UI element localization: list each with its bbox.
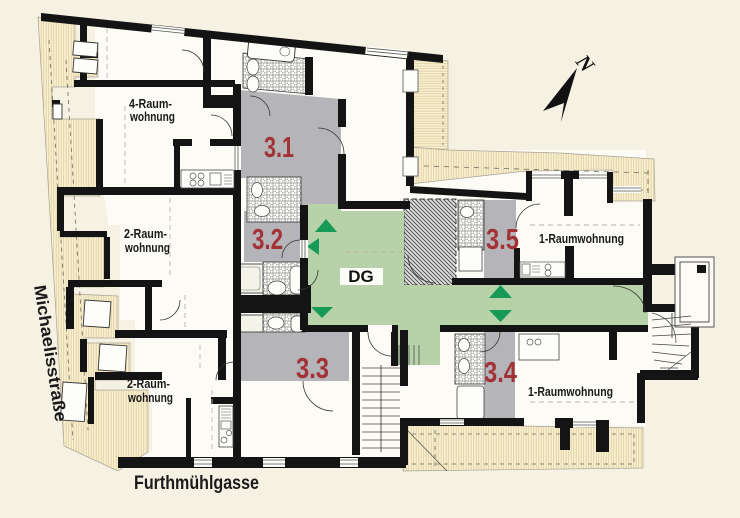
svg-text:2-Raum-: 2-Raum- bbox=[124, 226, 167, 241]
svg-text:wohnung: wohnung bbox=[129, 109, 175, 124]
svg-text:Furthmühlgasse: Furthmühlgasse bbox=[134, 473, 259, 494]
svg-text:3.5: 3.5 bbox=[486, 224, 519, 256]
svg-text:DG: DG bbox=[348, 267, 374, 286]
svg-text:wohnung: wohnung bbox=[127, 390, 173, 405]
svg-text:1-Raumwohnung: 1-Raumwohnung bbox=[528, 384, 613, 399]
svg-text:3.2: 3.2 bbox=[252, 224, 283, 256]
svg-text:3.1: 3.1 bbox=[264, 132, 294, 164]
svg-text:1-Raumwohnung: 1-Raumwohnung bbox=[539, 231, 624, 246]
svg-text:3.3: 3.3 bbox=[296, 353, 329, 385]
svg-text:wohnung: wohnung bbox=[124, 240, 170, 255]
svg-text:3.4: 3.4 bbox=[484, 357, 517, 389]
svg-text:2-Raum-: 2-Raum- bbox=[127, 376, 170, 391]
